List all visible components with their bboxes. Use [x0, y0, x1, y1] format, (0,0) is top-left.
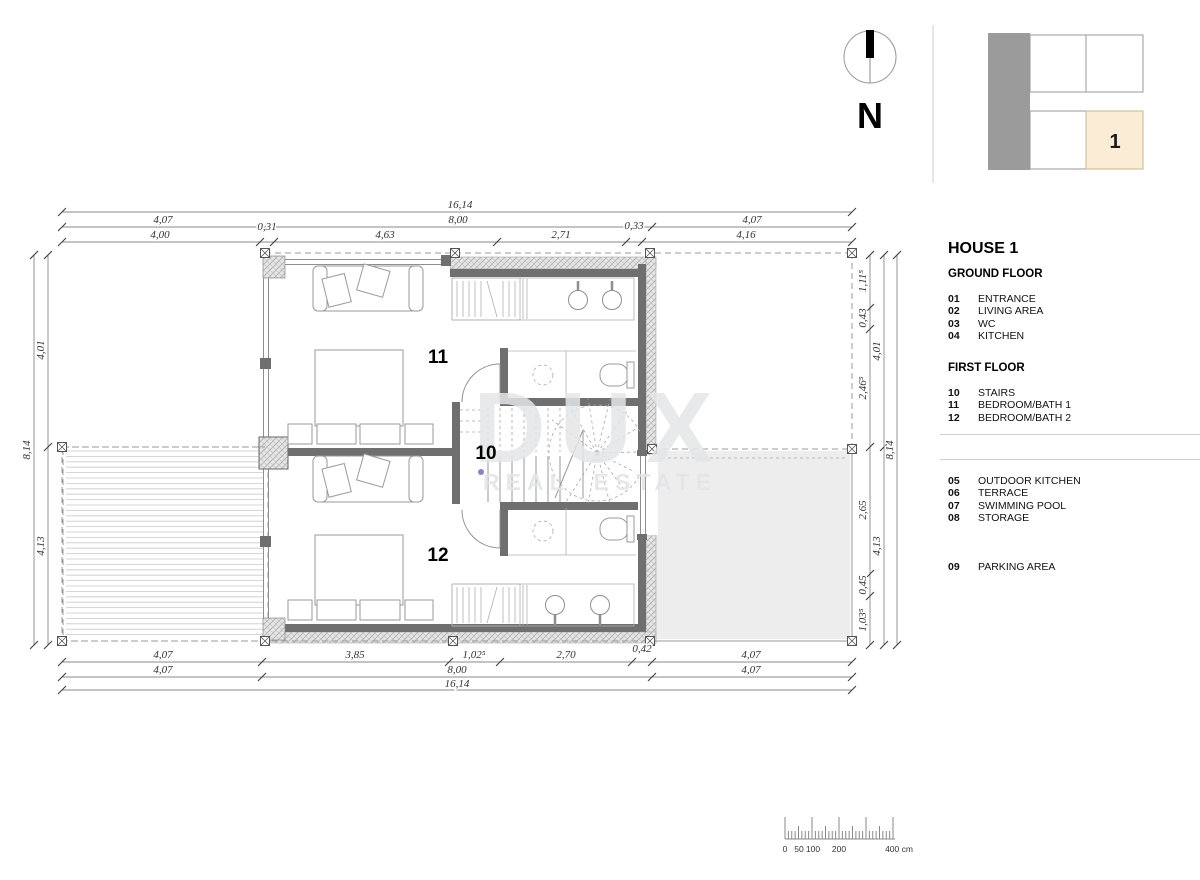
- watermark-line1: DUX: [473, 372, 726, 484]
- scale-bar: 0 50 100 200 400 cm: [783, 817, 913, 854]
- legend-item: 11BEDROOM/BATH 1: [948, 399, 1071, 411]
- sink: [591, 596, 610, 615]
- shower-drain: [533, 521, 553, 541]
- dim: 4,07: [153, 664, 173, 676]
- legend-item-number: 08: [948, 512, 978, 524]
- dim-right-total: 8,14: [884, 440, 896, 460]
- dim: 4,07: [742, 214, 762, 226]
- legend-item-number: 11: [948, 399, 978, 411]
- legend-item-label: OUTDOOR KITCHEN: [978, 475, 1081, 487]
- dim-bottom-total: 16,14: [445, 678, 470, 690]
- legend-heading-ground-floor: GROUND FLOOR: [948, 268, 1043, 280]
- sink: [603, 291, 622, 310]
- floor-plan-page: DUX REAL ESTATE 11 10 12 16,14 4,07 8,00…: [0, 0, 1200, 880]
- watermark: DUX REAL ESTATE: [473, 372, 726, 495]
- dim: 0,45: [857, 575, 869, 595]
- legend-item-number: 06: [948, 487, 978, 499]
- legend-item-label: TERRACE: [978, 487, 1028, 499]
- legend-item-number: 03: [948, 318, 978, 330]
- legend-item-label: BEDROOM/BATH 1: [978, 399, 1071, 411]
- legend-item: 04KITCHEN: [948, 330, 1043, 342]
- legend-item-number: 10: [948, 387, 978, 399]
- dim: 3,85: [344, 649, 365, 661]
- legend-item-label: ENTRANCE: [978, 293, 1036, 305]
- dim: 4,13: [35, 536, 47, 556]
- bottom-bathroom: [508, 508, 636, 555]
- legend-item: 02LIVING AREA: [948, 305, 1043, 317]
- room-label-12: 12: [427, 545, 448, 566]
- scale-label: 100: [806, 844, 820, 854]
- legend-divider: [940, 434, 1200, 435]
- bed: [315, 535, 403, 605]
- door-swing-arc: [462, 510, 500, 548]
- dim: 1,11⁵: [857, 270, 869, 292]
- dim: 2,65: [857, 500, 869, 520]
- legend-item-number: 09: [948, 561, 978, 573]
- watermark-line2: REAL ESTATE: [483, 469, 717, 495]
- legend-list-site: 09PARKING AREA: [948, 561, 1055, 573]
- north-arrow: N: [844, 30, 896, 136]
- room-label-11: 11: [428, 347, 449, 368]
- scale-label: 0: [783, 844, 788, 854]
- north-needle: [866, 30, 874, 58]
- legend-item-label: STAIRS: [978, 387, 1015, 399]
- legend-item-number: 12: [948, 412, 978, 424]
- dim-top-total: 16,14: [448, 199, 473, 211]
- dim: 4,07: [153, 649, 173, 661]
- legend-item-label: WC: [978, 318, 996, 330]
- bottom-closet-vanity: [452, 584, 634, 626]
- dim-left-total: 8,14: [21, 440, 33, 460]
- dim: 4,00: [150, 229, 170, 241]
- dim: 4,01: [35, 340, 47, 359]
- legend-item-label: PARKING AREA: [978, 561, 1055, 573]
- legend-item-number: 04: [948, 330, 978, 342]
- dim: 2,46⁵: [857, 376, 869, 399]
- north-label: N: [857, 95, 883, 136]
- dim: 0,31: [257, 221, 276, 233]
- scale-label: 400 cm: [885, 844, 913, 854]
- legend-item-label: LIVING AREA: [978, 305, 1043, 317]
- dim: 1,03⁵: [857, 608, 869, 631]
- dim: 0,42: [632, 643, 652, 655]
- legend-item: 09PARKING AREA: [948, 561, 1055, 573]
- entrance-niche: [259, 437, 288, 469]
- scale-label: 200: [832, 844, 846, 854]
- legend-item: 05OUTDOOR KITCHEN: [948, 475, 1081, 487]
- dim: 4,07: [153, 214, 173, 226]
- legend-title: HOUSE 1: [948, 240, 1018, 258]
- dim: 4,13: [871, 536, 883, 556]
- legend-item-label: SWIMMING POOL: [978, 500, 1066, 512]
- legend-item: 03WC: [948, 318, 1043, 330]
- legend-item: 01ENTRANCE: [948, 293, 1043, 305]
- legend-list-outdoor: 05OUTDOOR KITCHEN 06TERRACE 07SWIMMING P…: [948, 475, 1081, 524]
- dim: 4,07: [741, 664, 761, 676]
- toilet: [600, 518, 628, 540]
- legend-item-label: BEDROOM/BATH 2: [978, 412, 1071, 424]
- scale-label: 50: [794, 844, 804, 854]
- legend-item-number: 01: [948, 293, 978, 305]
- legend-item-label: KITCHEN: [978, 330, 1024, 342]
- dim: 4,63: [375, 229, 395, 241]
- legend-item: 08STORAGE: [948, 512, 1081, 524]
- dim: 2,70: [556, 649, 576, 661]
- legend-item-number: 02: [948, 305, 978, 317]
- legend-divider: [940, 459, 1200, 460]
- dim: 1,02⁵: [462, 649, 485, 661]
- room12-furniture: [288, 454, 433, 620]
- legend-item-number: 07: [948, 500, 978, 512]
- sink: [569, 291, 588, 310]
- legend-item-label: STORAGE: [978, 512, 1029, 524]
- legend-panel: HOUSE 1 GROUND FLOOR 01ENTRANCE 02LIVING…: [948, 0, 1200, 880]
- dim: 4,07: [741, 649, 761, 661]
- legend-item: 07SWIMMING POOL: [948, 500, 1081, 512]
- dim: 2,71: [551, 229, 570, 241]
- legend-item: 06TERRACE: [948, 487, 1081, 499]
- legend-list-ground: 01ENTRANCE 02LIVING AREA 03WC 04KITCHEN: [948, 293, 1043, 342]
- legend-item: 12BEDROOM/BATH 2: [948, 412, 1071, 424]
- top-closet-vanity: [452, 278, 634, 320]
- bed: [315, 350, 403, 426]
- legend-heading-first-floor: FIRST FLOOR: [948, 362, 1025, 374]
- room11-furniture: [288, 264, 433, 444]
- left-deck-terrace: [63, 447, 268, 641]
- dim: 8,00: [448, 214, 468, 226]
- dim: 4,01: [871, 341, 883, 360]
- sink: [546, 596, 565, 615]
- dim: 4,16: [736, 229, 756, 241]
- legend-list-first: 10STAIRS 11BEDROOM/BATH 1 12BEDROOM/BATH…: [948, 387, 1071, 424]
- legend-item-number: 05: [948, 475, 978, 487]
- room-label-10: 10: [475, 443, 496, 464]
- legend-item: 10STAIRS: [948, 387, 1071, 399]
- dim: 0,33: [624, 220, 644, 232]
- dim: 8,00: [447, 664, 467, 676]
- dim: 0,43: [857, 308, 869, 328]
